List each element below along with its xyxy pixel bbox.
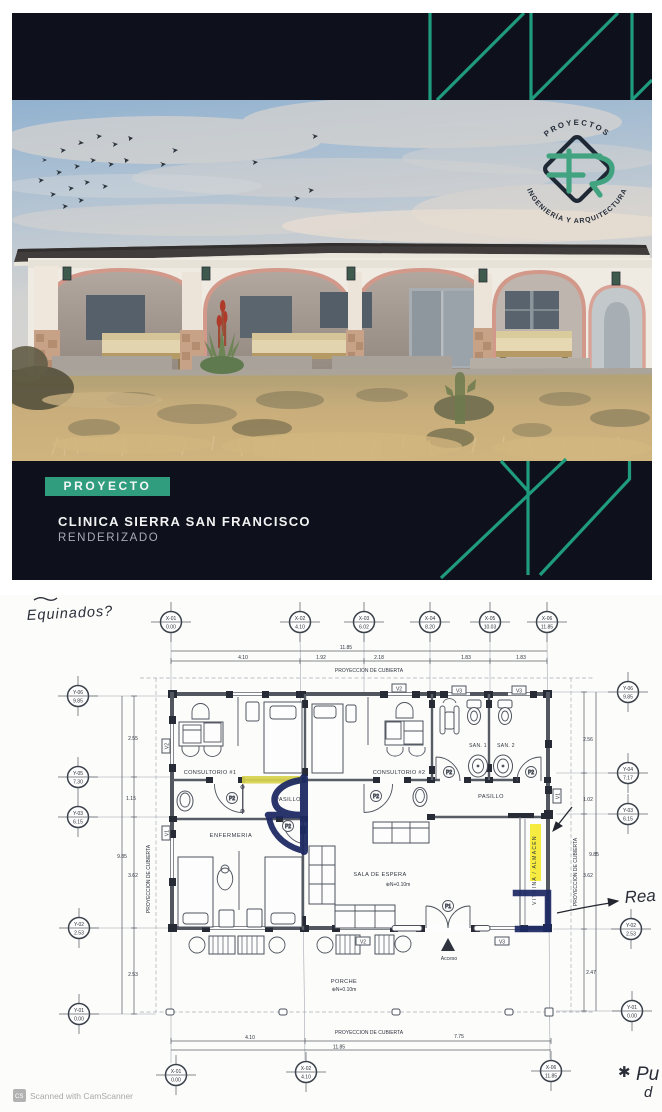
svg-text:7.30: 7.30 bbox=[73, 780, 83, 786]
svg-text:V2: V2 bbox=[360, 940, 366, 946]
svg-text:V1: V1 bbox=[556, 793, 562, 799]
svg-text:1.02: 1.02 bbox=[583, 797, 593, 803]
svg-text:7.75: 7.75 bbox=[454, 1034, 464, 1040]
svg-text:Y-03: Y-03 bbox=[73, 811, 83, 817]
svg-text:Y-02: Y-02 bbox=[626, 923, 636, 929]
svg-text:SALA DE ESPERA: SALA DE ESPERA bbox=[353, 872, 406, 878]
svg-text:CONSULTORIO #2: CONSULTORIO #2 bbox=[373, 770, 425, 776]
svg-text:V2: V2 bbox=[165, 743, 171, 749]
svg-text:Y-05: Y-05 bbox=[73, 771, 83, 777]
svg-text:2.18: 2.18 bbox=[374, 655, 384, 661]
svg-text:Rea: Rea bbox=[624, 886, 656, 907]
svg-text:X-03: X-03 bbox=[359, 616, 370, 622]
svg-text:d: d bbox=[644, 1084, 653, 1101]
svg-text:V3: V3 bbox=[456, 689, 462, 695]
svg-text:0.00: 0.00 bbox=[627, 1014, 637, 1020]
svg-text:2.53: 2.53 bbox=[626, 932, 636, 938]
svg-text:SAN. 1: SAN. 1 bbox=[469, 743, 487, 749]
svg-text:11.85: 11.85 bbox=[340, 645, 352, 651]
svg-text:2.56: 2.56 bbox=[583, 737, 593, 743]
svg-text:PROYECCION DE CUBIERTA: PROYECCION DE CUBIERTA bbox=[335, 1030, 404, 1036]
svg-text:P2: P2 bbox=[446, 770, 452, 776]
svg-text:0.00: 0.00 bbox=[166, 625, 176, 631]
svg-text:6.15: 6.15 bbox=[623, 817, 633, 823]
svg-text:P2: P2 bbox=[528, 770, 534, 776]
svg-text:1.83: 1.83 bbox=[461, 655, 471, 661]
svg-text:2.47: 2.47 bbox=[586, 970, 596, 976]
svg-text:Y-02: Y-02 bbox=[74, 922, 84, 928]
svg-text:⊕N+0.10m: ⊕N+0.10m bbox=[386, 882, 411, 888]
svg-text:6.15: 6.15 bbox=[73, 820, 83, 826]
svg-text:X-05: X-05 bbox=[485, 616, 496, 622]
svg-text:SAN. 2: SAN. 2 bbox=[497, 743, 515, 749]
svg-text:11.85: 11.85 bbox=[333, 1045, 345, 1051]
svg-text:V3: V3 bbox=[499, 940, 505, 946]
svg-text:P1: P1 bbox=[445, 904, 451, 910]
svg-text:4.10: 4.10 bbox=[245, 1035, 255, 1041]
svg-text:X-01: X-01 bbox=[166, 616, 177, 622]
svg-text:10.03: 10.03 bbox=[484, 625, 497, 631]
svg-text:X-02: X-02 bbox=[301, 1066, 312, 1072]
svg-text:1.92: 1.92 bbox=[316, 655, 326, 661]
svg-text:3.62: 3.62 bbox=[128, 873, 138, 879]
svg-text:2.53: 2.53 bbox=[74, 931, 84, 937]
svg-text:2.53: 2.53 bbox=[128, 972, 138, 978]
svg-text:Y-06: Y-06 bbox=[623, 686, 633, 692]
svg-text:9.85: 9.85 bbox=[117, 854, 127, 860]
svg-text:PROYECCION DE CUBIERTA: PROYECCION DE CUBIERTA bbox=[146, 844, 152, 913]
svg-text:4.10: 4.10 bbox=[301, 1075, 311, 1081]
svg-text:X-01: X-01 bbox=[171, 1069, 182, 1075]
svg-text:0.00: 0.00 bbox=[171, 1078, 181, 1084]
svg-text:Y-06: Y-06 bbox=[73, 690, 83, 696]
svg-text:⊕N+0.10m: ⊕N+0.10m bbox=[332, 987, 357, 993]
svg-text:V1: V1 bbox=[165, 830, 171, 836]
svg-text:9.85: 9.85 bbox=[623, 695, 633, 701]
svg-text:CONSULTORIO #1: CONSULTORIO #1 bbox=[184, 770, 236, 776]
svg-text:PROYECCION DE CUBIERTA: PROYECCION DE CUBIERTA bbox=[335, 668, 404, 674]
svg-text:✱: ✱ bbox=[618, 1064, 631, 1081]
svg-text:Acceso: Acceso bbox=[441, 956, 458, 962]
svg-text:0.00: 0.00 bbox=[74, 1017, 84, 1023]
svg-text:Scanned with CamScanner: Scanned with CamScanner bbox=[30, 1091, 133, 1101]
svg-text:P2: P2 bbox=[373, 794, 379, 800]
svg-text:7.17: 7.17 bbox=[623, 776, 633, 782]
svg-text:Pu: Pu bbox=[636, 1064, 660, 1085]
svg-text:Y-01: Y-01 bbox=[74, 1008, 84, 1014]
svg-text:PASILLO: PASILLO bbox=[275, 797, 301, 803]
svg-text:X-04: X-04 bbox=[425, 616, 436, 622]
svg-text:X-06: X-06 bbox=[542, 616, 553, 622]
svg-text:11.85: 11.85 bbox=[541, 625, 553, 631]
svg-text:PASILLO: PASILLO bbox=[478, 794, 504, 800]
svg-text:Y-04: Y-04 bbox=[623, 767, 633, 773]
svg-text:ENFERMERIA: ENFERMERIA bbox=[210, 833, 253, 839]
svg-text:6.02: 6.02 bbox=[359, 625, 369, 631]
svg-text:V3: V3 bbox=[516, 689, 522, 695]
svg-text:8.20: 8.20 bbox=[425, 625, 435, 631]
svg-text:1.15: 1.15 bbox=[126, 796, 136, 802]
svg-text:PORCHE: PORCHE bbox=[331, 979, 357, 985]
svg-text:11.85: 11.85 bbox=[545, 1074, 557, 1080]
svg-text:X-02: X-02 bbox=[295, 616, 306, 622]
svg-text:P2: P2 bbox=[285, 824, 291, 830]
svg-text:PROYECCION DE CUBIERTA: PROYECCION DE CUBIERTA bbox=[573, 837, 579, 906]
svg-text:X-06: X-06 bbox=[546, 1065, 557, 1071]
svg-text:9.85: 9.85 bbox=[73, 699, 83, 705]
svg-text:9.85: 9.85 bbox=[589, 852, 599, 858]
svg-text:3.62: 3.62 bbox=[583, 873, 593, 879]
svg-text:P2: P2 bbox=[229, 796, 235, 802]
svg-text:V2: V2 bbox=[396, 687, 402, 693]
svg-text:2.55: 2.55 bbox=[128, 736, 138, 742]
svg-text:CS: CS bbox=[15, 1094, 23, 1100]
svg-text:Y-01: Y-01 bbox=[627, 1005, 637, 1011]
svg-text:INGENIERÍA Y ARQUITECTURA: INGENIERÍA Y ARQUITECTURA bbox=[525, 187, 629, 225]
svg-text:Y-03: Y-03 bbox=[623, 808, 633, 814]
svg-text:1.83: 1.83 bbox=[516, 655, 526, 661]
svg-text:4.10: 4.10 bbox=[295, 625, 305, 631]
svg-text:4.10: 4.10 bbox=[238, 655, 248, 661]
